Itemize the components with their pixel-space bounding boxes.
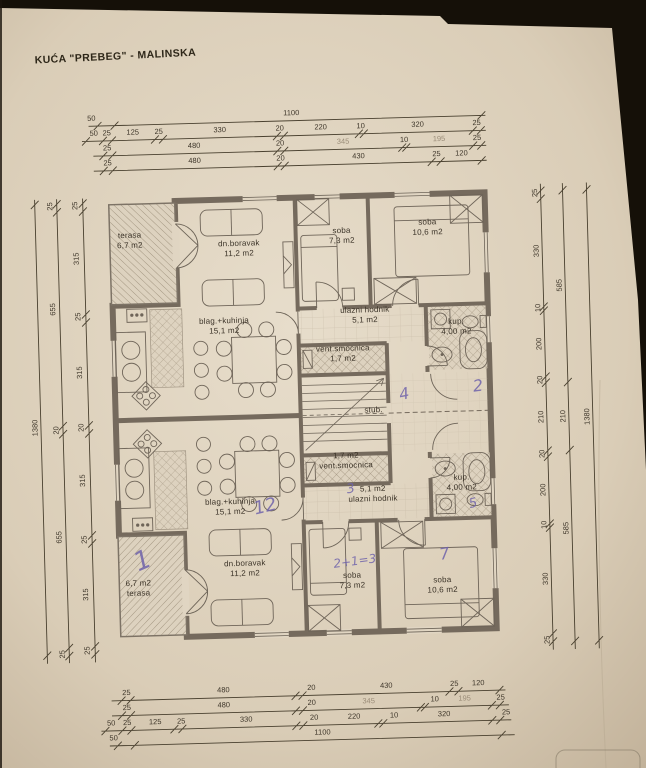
dim-label: 330 bbox=[541, 572, 550, 585]
room-name: kup. bbox=[453, 472, 469, 483]
room-name: blag.+kuhinja bbox=[199, 316, 249, 328]
room-area: 1,7 m2 bbox=[333, 451, 359, 462]
dim-label: 345 bbox=[362, 696, 375, 705]
dim-label: 1100 bbox=[283, 108, 299, 117]
dim-label: 50 bbox=[87, 114, 96, 123]
dim-label: 480 bbox=[217, 700, 230, 709]
room-label-stubiste: stub. bbox=[364, 405, 383, 416]
room-area: 7,3 m2 bbox=[329, 236, 355, 247]
dim-label: 25 bbox=[432, 149, 441, 158]
tv-cabinet bbox=[283, 242, 294, 288]
room-area: 15,1 m2 bbox=[215, 507, 246, 518]
room-label-terasa-top: terasa 6,7 m2 bbox=[117, 231, 143, 252]
room-label-kupaonica-bottom: kup. 4,00 m2 bbox=[446, 472, 477, 494]
dim-label: 10 bbox=[430, 694, 439, 703]
room-label-dnevni-boravak-top: dn.boravak 11,2 m2 bbox=[218, 238, 260, 260]
dim-label: 330 bbox=[532, 245, 541, 258]
dim-label: 345 bbox=[337, 137, 350, 146]
dim-label: 330 bbox=[213, 125, 226, 134]
dim-label: 25 bbox=[542, 635, 551, 644]
dim-label: 20 bbox=[276, 138, 285, 147]
dim-label: 315 bbox=[72, 252, 81, 265]
dim-label: 20 bbox=[307, 698, 316, 707]
room-area: 6,7 m2 bbox=[117, 241, 143, 252]
room-area: 7,3 m2 bbox=[340, 581, 366, 592]
room-label-dnevni-boravak-bottom: dn.boravak 11,2 m2 bbox=[224, 558, 266, 580]
dim-label: 25 bbox=[83, 646, 92, 655]
dim-label: 320 bbox=[438, 709, 451, 718]
stool bbox=[194, 363, 208, 377]
dim-label: 1380 bbox=[582, 408, 591, 425]
room-name: kup. bbox=[448, 317, 464, 328]
room-area: 5,1 m2 bbox=[360, 484, 386, 495]
dim-label: 10 bbox=[356, 121, 365, 130]
dim-label: 10 bbox=[400, 135, 409, 144]
dim-label: 25 bbox=[73, 312, 82, 321]
room-label-soba-mala-bottom: soba 7,3 m2 bbox=[339, 570, 365, 591]
room-name: soba bbox=[433, 575, 451, 586]
party-wall bbox=[116, 416, 301, 421]
dim-label: 20 bbox=[307, 683, 316, 692]
room-area: 11,2 m2 bbox=[224, 249, 254, 260]
dim-label: 120 bbox=[455, 148, 468, 157]
kitchen-sink bbox=[122, 363, 140, 381]
dim-label: 315 bbox=[81, 588, 90, 601]
dim-label: 25 bbox=[122, 688, 131, 697]
dim-label: 25 bbox=[79, 535, 88, 544]
drawing-area: KUĆA "PREBEG" - MALINSKA 50 1100 50 25 1… bbox=[0, 0, 646, 768]
room-area: 6,7 m2 bbox=[125, 578, 151, 589]
room-area: 5,1 m2 bbox=[352, 315, 378, 326]
nightstand bbox=[342, 288, 354, 300]
dim-label: 10 bbox=[533, 304, 542, 313]
dim-label: 25 bbox=[58, 650, 67, 659]
room-name: terasa bbox=[118, 231, 142, 242]
room-area: 15,1 m2 bbox=[209, 326, 240, 337]
dim-label: 655 bbox=[48, 303, 57, 316]
dim-label: 585 bbox=[561, 522, 570, 535]
terrace-door-opening bbox=[172, 222, 180, 268]
room-name: soba bbox=[418, 217, 436, 228]
room-name: ulazni hodnik bbox=[340, 305, 390, 317]
dim-label: 480 bbox=[217, 685, 230, 694]
dim-label: 220 bbox=[348, 712, 361, 721]
dim-label: 10 bbox=[539, 521, 548, 530]
room-name: vent.smocnica bbox=[319, 461, 373, 473]
dim-label: 25 bbox=[103, 143, 112, 152]
dim-label: 320 bbox=[411, 119, 424, 128]
dim-label: 25 bbox=[472, 118, 481, 127]
room-label-kupaonica-top: kup. 4,00 m2 bbox=[441, 316, 472, 338]
dim-label: 20 bbox=[310, 713, 319, 722]
room-name: vent.smocnica bbox=[316, 343, 370, 355]
dim-label: 125 bbox=[126, 127, 139, 136]
dim-label: 655 bbox=[54, 531, 63, 544]
dim-label: 1100 bbox=[314, 727, 330, 736]
dim-label: 10 bbox=[390, 710, 399, 719]
dim-label: 25 bbox=[177, 716, 186, 725]
dim-label: 195 bbox=[458, 693, 471, 702]
room-area: 4,00 m2 bbox=[447, 483, 478, 494]
dim-label: 20 bbox=[51, 426, 60, 435]
dim-label: 25 bbox=[530, 189, 539, 198]
dim-label: 480 bbox=[188, 156, 201, 165]
dim-label: 200 bbox=[538, 483, 547, 496]
dim-label: 50 bbox=[89, 129, 98, 138]
room-label-blagovaonica-kuhinja-bottom: blag.+kuhinja 15,1 m2 bbox=[205, 496, 256, 518]
room-area: 4,00 m2 bbox=[441, 327, 472, 338]
dim-label: 25 bbox=[70, 201, 79, 210]
room-name: soba bbox=[343, 571, 361, 582]
stool bbox=[195, 385, 209, 399]
kitchen-sink bbox=[122, 341, 140, 359]
dim-label: 25 bbox=[154, 127, 163, 136]
dim-label: 315 bbox=[75, 366, 84, 379]
dim-label: 25 bbox=[102, 128, 111, 137]
dim-label: 25 bbox=[496, 692, 505, 701]
room-label-vent-smocnica-bottom: 1,7 m2 vent.smocnica bbox=[319, 450, 373, 472]
photo-of-floor-plan: KUĆA "PREBEG" - MALINSKA 50 1100 50 25 1… bbox=[0, 0, 646, 768]
dim-label: 25 bbox=[473, 133, 482, 142]
room-name: stub. bbox=[364, 405, 383, 416]
dim-label: 25 bbox=[122, 703, 131, 712]
room-area: 10,6 m2 bbox=[427, 585, 458, 596]
kitchen-counter bbox=[150, 309, 184, 388]
room-area: 10,6 m2 bbox=[412, 228, 443, 239]
dim-label: 315 bbox=[78, 474, 87, 487]
dining-table bbox=[231, 336, 276, 383]
room-label-blagovaonica-kuhinja-top: blag.+kuhinja 15,1 m2 bbox=[199, 316, 250, 338]
dim-label: 20 bbox=[537, 450, 546, 459]
room-area: 1,7 m2 bbox=[330, 354, 356, 365]
dim-label: 195 bbox=[433, 134, 446, 143]
dim-label: 125 bbox=[149, 717, 162, 726]
apartment-unit-mirrored bbox=[112, 410, 500, 642]
room-area: 11,2 m2 bbox=[230, 569, 260, 580]
terrace-deck bbox=[109, 203, 178, 305]
dim-label: 25 bbox=[103, 158, 112, 167]
dim-label: 20 bbox=[276, 153, 285, 162]
dim-label: 210 bbox=[536, 410, 545, 423]
room-name: terasa bbox=[127, 589, 151, 600]
room-label-terasa-bottom: 6,7 m2 terasa bbox=[125, 578, 151, 599]
dim-label: 330 bbox=[240, 715, 253, 724]
dim-label: 210 bbox=[558, 410, 567, 423]
room-label-soba-mala-top: soba 7,3 m2 bbox=[329, 226, 355, 247]
room-label-ulazni-hodnik-top: ulazni hodnik 5,1 m2 bbox=[340, 305, 390, 327]
dim-label: 480 bbox=[188, 141, 201, 150]
dim-label: 50 bbox=[107, 718, 116, 727]
dim-label: 20 bbox=[76, 423, 85, 432]
room-label-soba-velika-top: soba 10,6 m2 bbox=[412, 217, 443, 239]
dim-label: 20 bbox=[535, 376, 544, 385]
dim-label: 585 bbox=[554, 279, 563, 292]
dim-label: 120 bbox=[472, 678, 485, 687]
dim-label: 1380 bbox=[30, 420, 39, 437]
dim-label: 220 bbox=[314, 122, 327, 131]
dim-label: 50 bbox=[109, 733, 118, 742]
dim-label: 25 bbox=[502, 707, 511, 716]
room-label-vent-smocnica-top: vent.smocnica 1,7 m2 bbox=[316, 343, 370, 365]
dim-label: 430 bbox=[380, 681, 393, 690]
room-label-soba-velika-bottom: soba 10,6 m2 bbox=[427, 575, 458, 597]
dim-label: 430 bbox=[352, 151, 365, 160]
room-name: soba bbox=[332, 226, 350, 237]
dim-label: 25 bbox=[123, 718, 132, 727]
dim-label: 200 bbox=[534, 337, 543, 350]
floor-plan-drawing bbox=[0, 0, 646, 768]
stool bbox=[194, 341, 208, 355]
floor-plan bbox=[106, 189, 500, 642]
dim-label: 25 bbox=[450, 679, 459, 688]
dim-label: 20 bbox=[275, 123, 284, 132]
dim-label: 25 bbox=[45, 202, 54, 211]
room-name: blag.+kuhinja bbox=[205, 496, 255, 508]
